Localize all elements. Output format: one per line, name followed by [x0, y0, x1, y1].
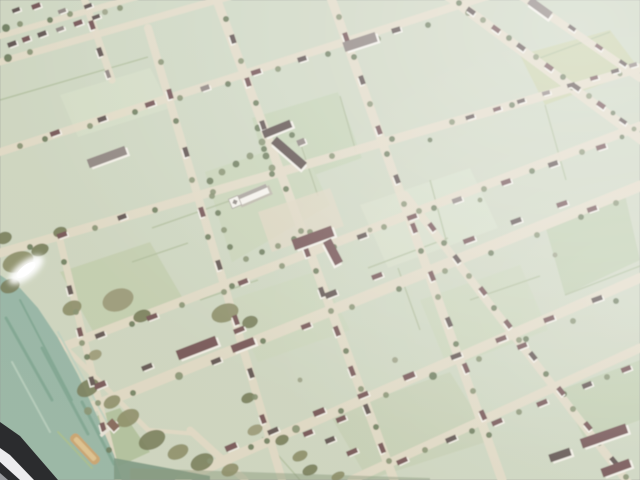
glass-veil: [0, 0, 640, 480]
museum-model-town-photo: [0, 0, 640, 480]
model-town-aerial-view: [0, 0, 640, 480]
